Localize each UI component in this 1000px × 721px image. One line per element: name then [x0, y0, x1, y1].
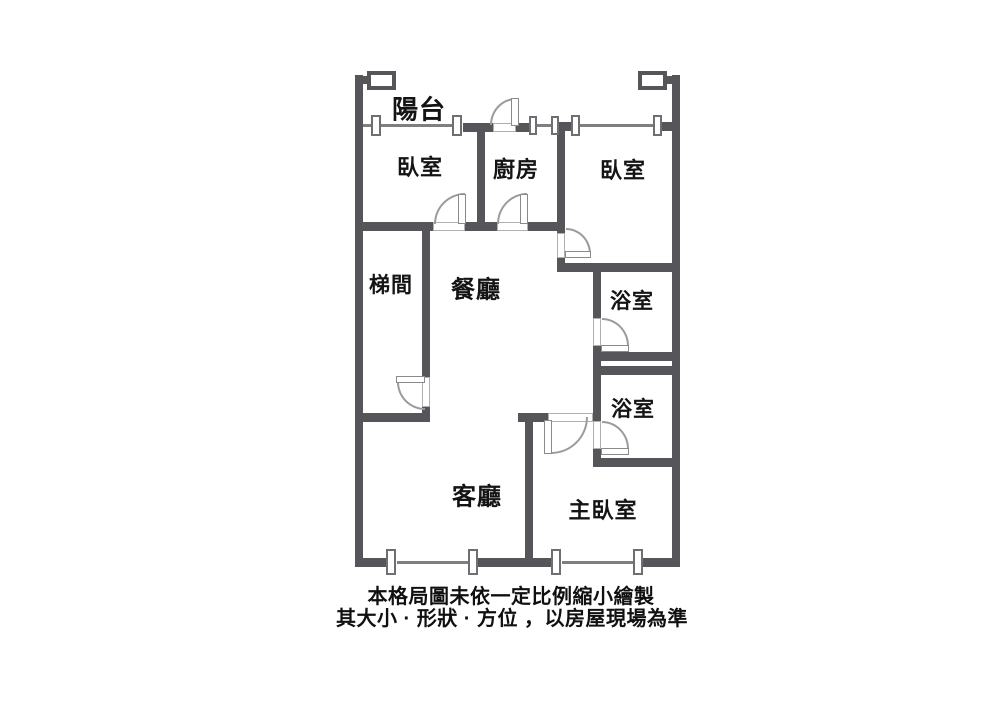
door-panel [565, 251, 591, 258]
window-glass-line [397, 561, 472, 564]
window-marker [529, 116, 537, 135]
room-label-balcony: 陽台 [392, 90, 446, 127]
window-marker [653, 115, 662, 136]
wall-segment [355, 413, 430, 422]
room-label-stairwell: 梯間 [369, 269, 413, 299]
window-marker [551, 116, 559, 135]
caption-line-2: 其大小 · 形狀 · 方位 ，以房屋現場為準 [336, 602, 688, 631]
room-label-bathroom-lower: 浴室 [611, 393, 655, 423]
window-glass-line [562, 561, 637, 564]
door-swing-arc [602, 318, 629, 346]
door-panel [520, 194, 528, 224]
window-marker [571, 115, 580, 136]
wall-segment [477, 130, 485, 231]
wall-segment [355, 75, 363, 566]
wall-segment [593, 352, 680, 361]
door-panel [601, 345, 629, 352]
wall-segment [672, 75, 680, 566]
wall-segment [355, 558, 388, 567]
door-opening [593, 318, 601, 346]
room-label-bedroom-right: 臥室 [600, 153, 646, 185]
wall-segment [422, 222, 430, 377]
door-panel [601, 448, 629, 455]
room-label-master-bedroom: 主臥室 [568, 493, 637, 525]
room-label-kitchen: 廚房 [493, 152, 539, 184]
window-marker [452, 115, 462, 136]
wall-segment [478, 558, 553, 567]
room-label-living: 客廳 [452, 477, 502, 512]
door-swing-arc [551, 417, 588, 454]
window-marker [468, 549, 478, 575]
door-panel [458, 194, 466, 224]
wall-segment [661, 122, 680, 131]
wall-segment [525, 413, 533, 566]
door-swing-arc [397, 382, 425, 410]
wall-segment [557, 122, 565, 233]
window-marker [633, 549, 643, 575]
door-panel [396, 376, 425, 383]
vent-box [638, 71, 667, 90]
wall-segment [643, 558, 680, 567]
door-opening [557, 233, 565, 258]
floor-plan: 陽台 臥室 廚房 臥室 梯間 餐廳 浴室 浴室 客廳 主臥室 本格局圖未依一定比… [0, 0, 1000, 721]
window-marker [371, 115, 381, 136]
wall-segment [593, 458, 680, 467]
wall-segment [593, 366, 680, 375]
room-label-bedroom-left: 臥室 [397, 150, 443, 182]
vent-box [367, 71, 396, 90]
door-panel [544, 420, 552, 454]
wall-segment [557, 263, 680, 272]
window-marker [386, 549, 396, 575]
wall-segment [593, 271, 601, 318]
room-label-bathroom-upper: 浴室 [610, 285, 654, 315]
window-marker [551, 549, 561, 575]
door-swing-arc [602, 421, 629, 449]
door-panel [511, 98, 519, 126]
window-glass-line [577, 124, 659, 127]
door-opening [593, 421, 601, 449]
room-label-dining: 餐廳 [451, 270, 501, 305]
